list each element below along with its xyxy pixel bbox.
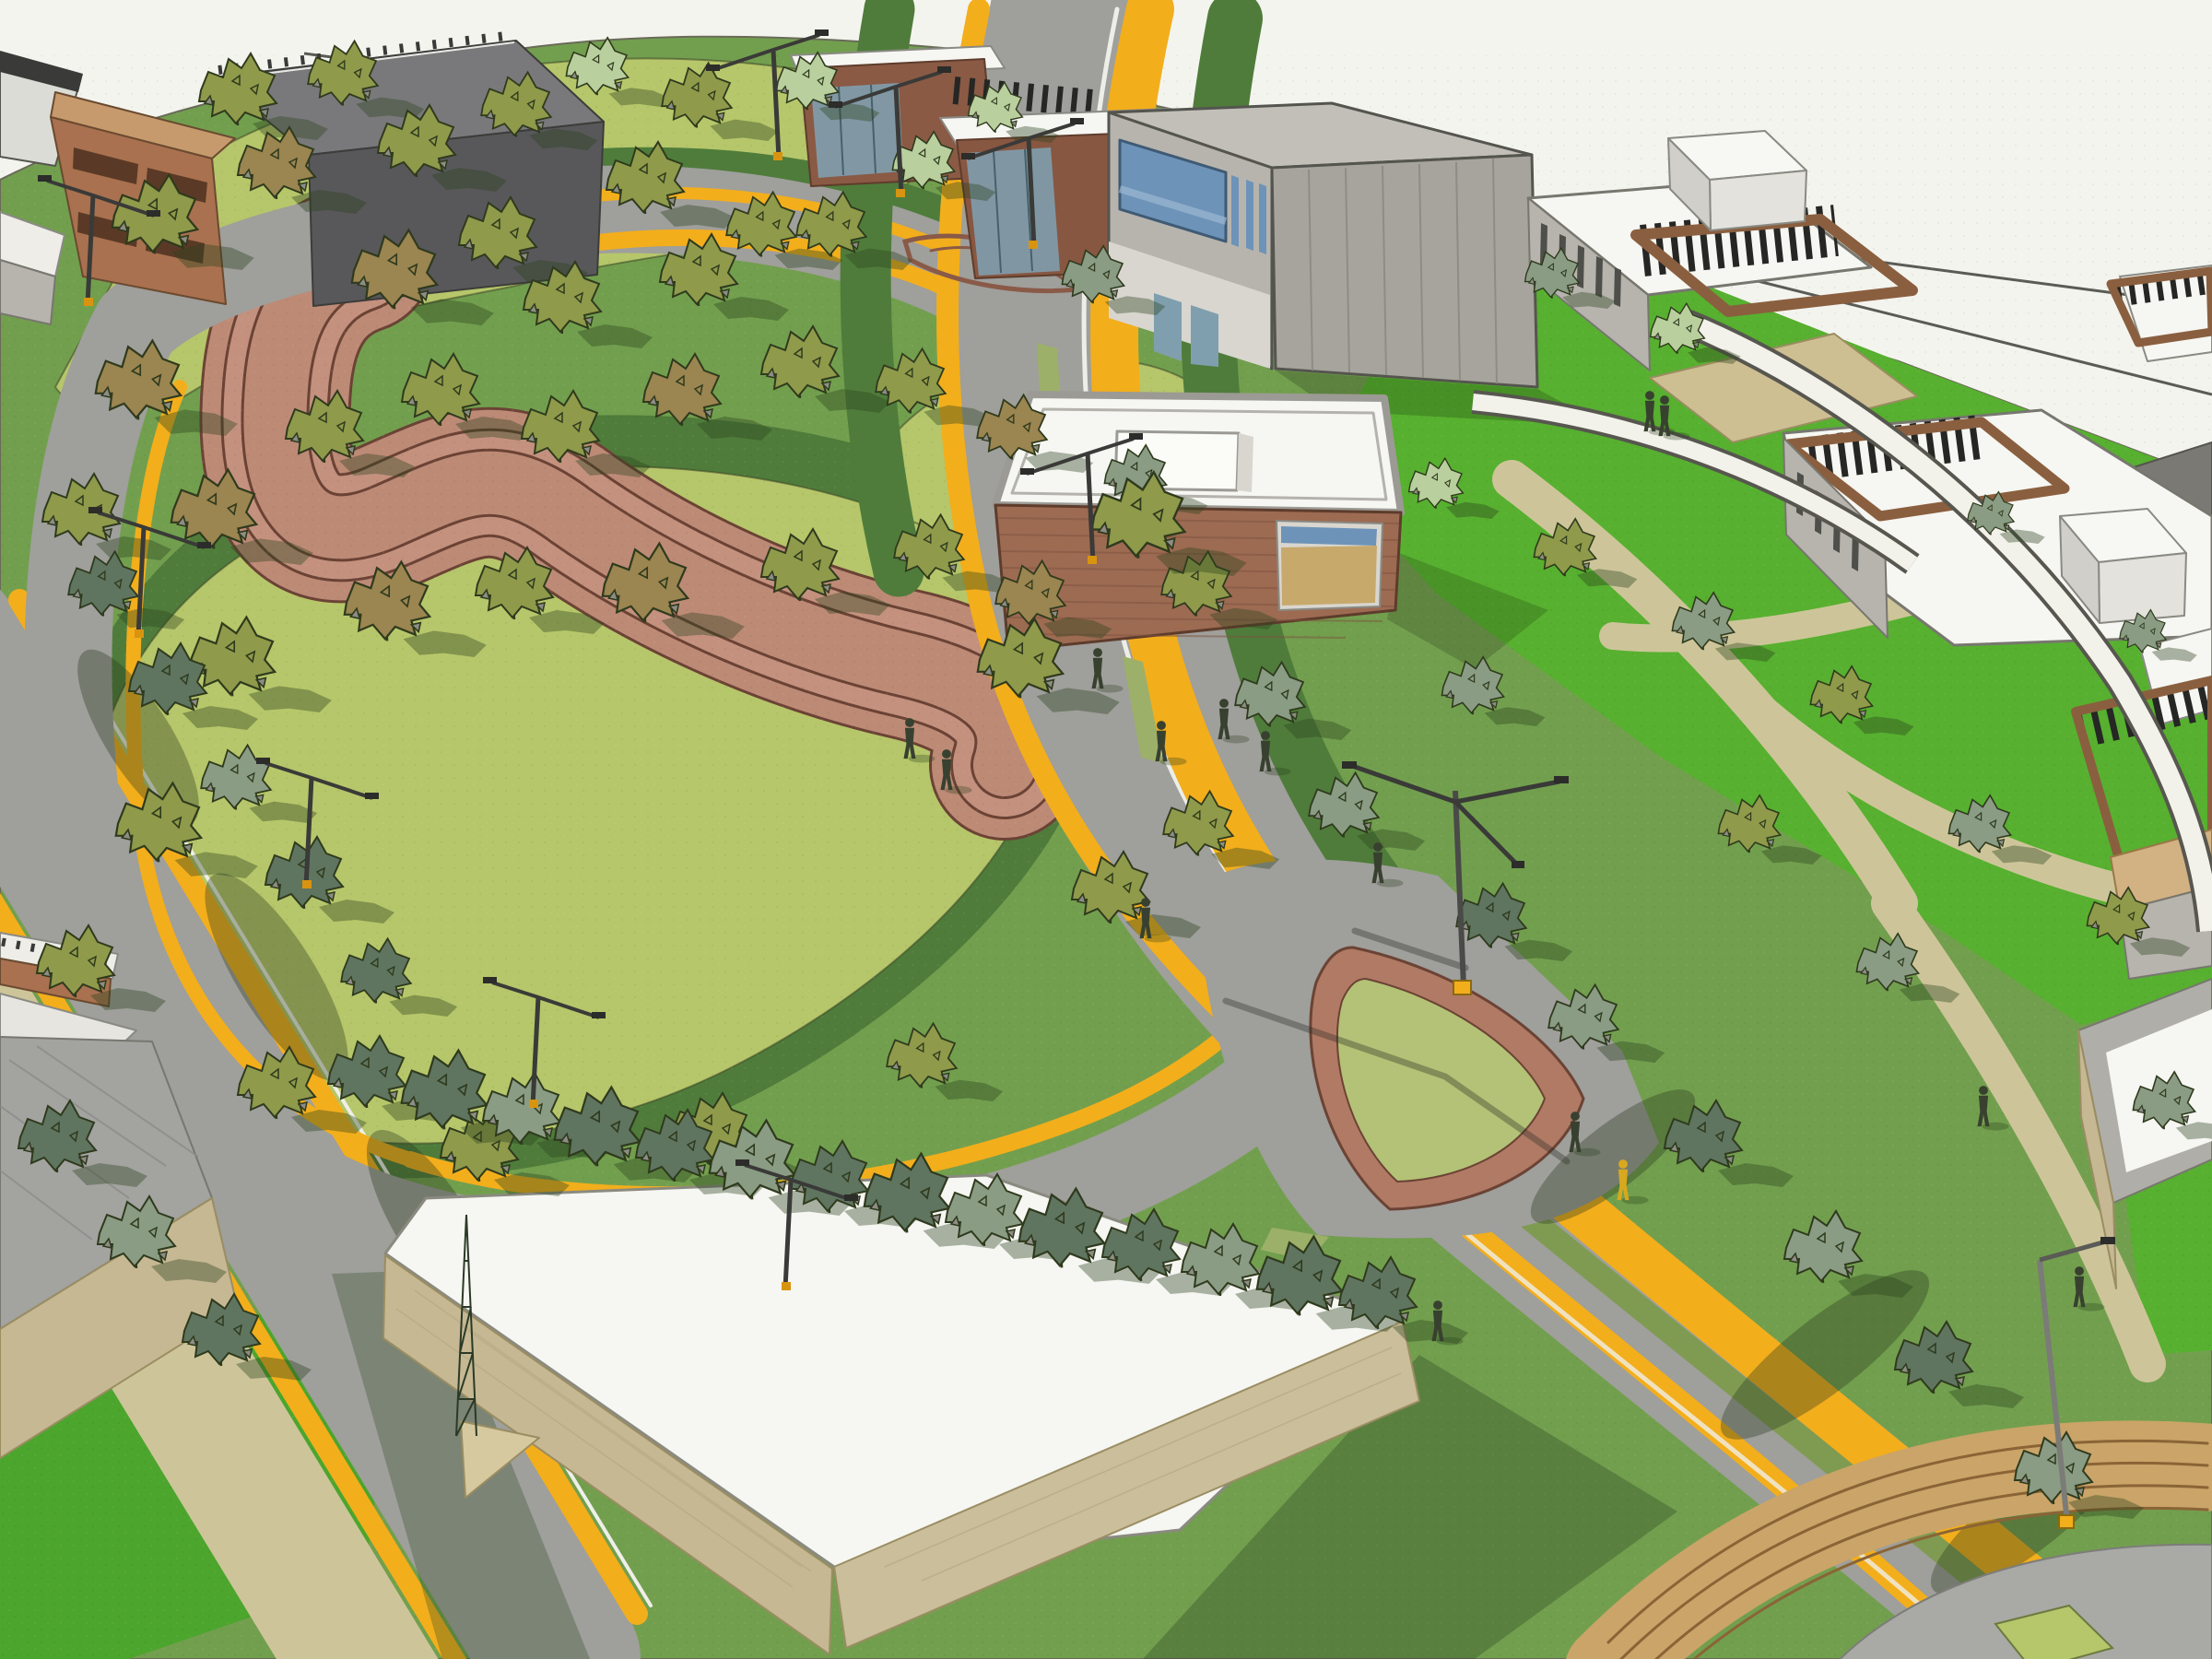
render-viewport xyxy=(0,0,2212,1659)
masterplan-render xyxy=(0,0,2212,1659)
